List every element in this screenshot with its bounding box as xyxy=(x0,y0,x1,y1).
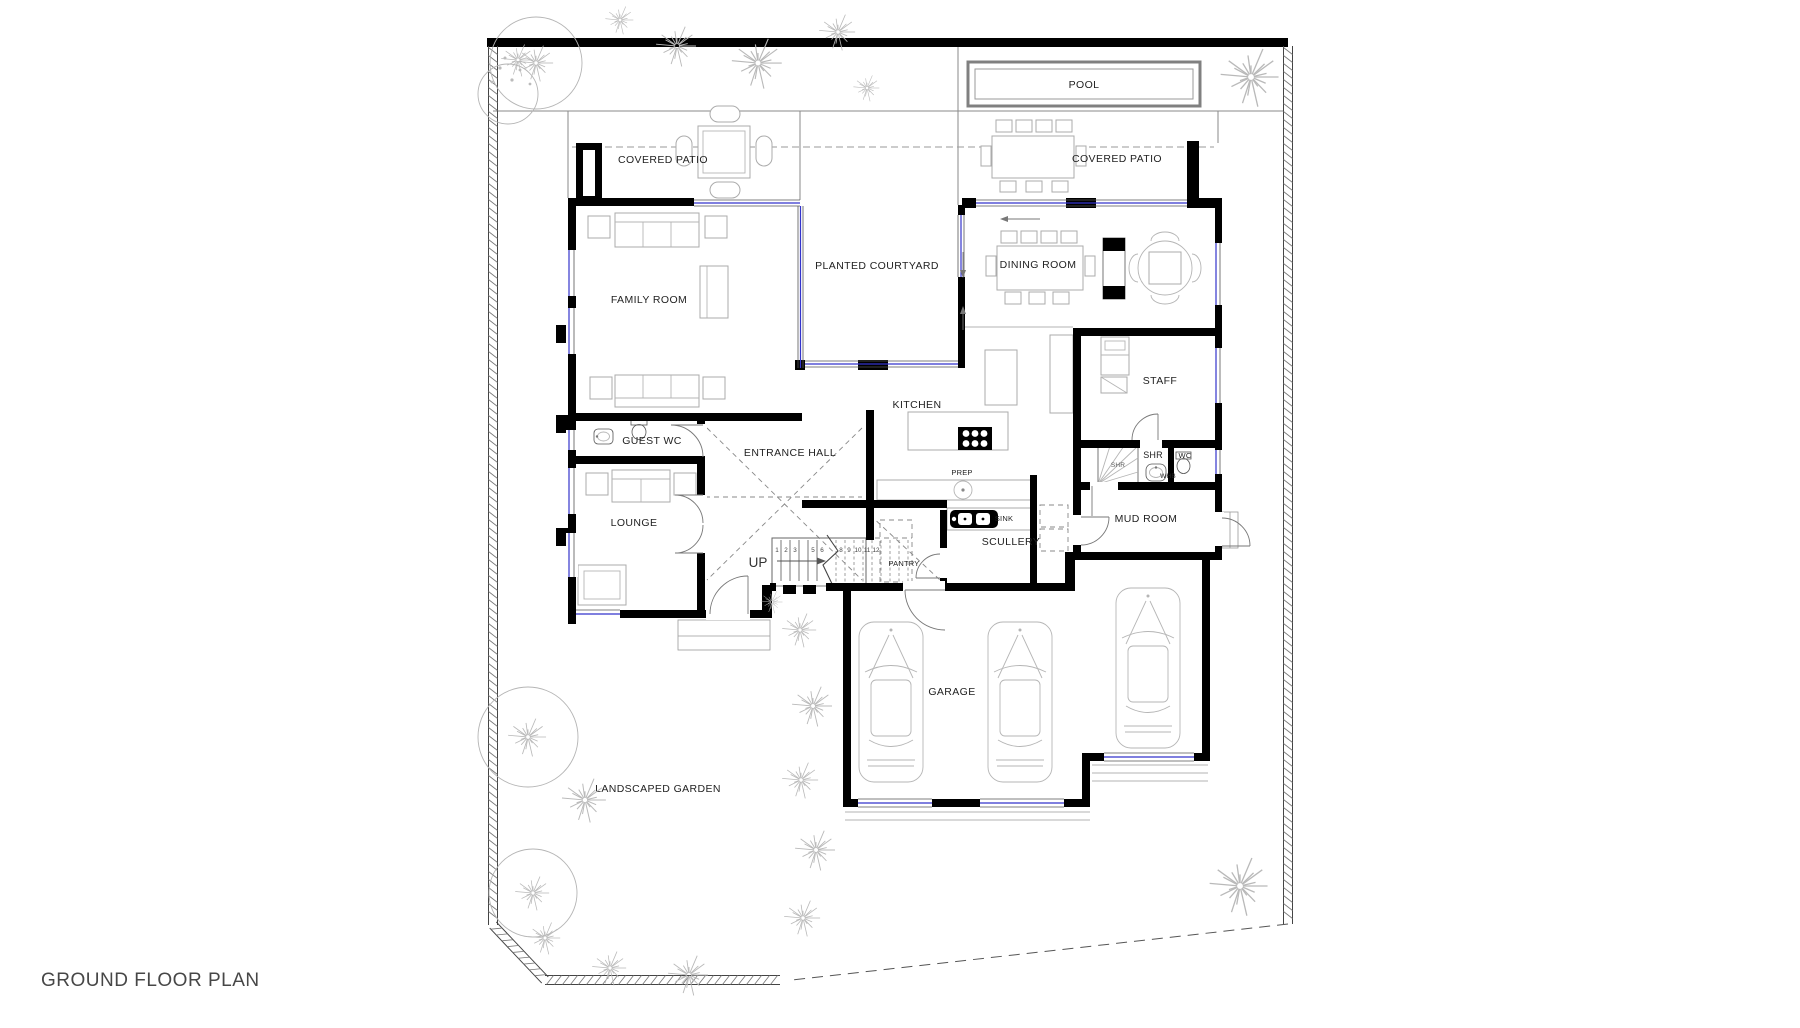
tree-icon xyxy=(1210,858,1268,916)
label-up: UP xyxy=(749,555,768,570)
property-line-dashed xyxy=(792,924,1288,980)
floor-plan: POOL COVERED PATIO COVERED PATIO FAMILY … xyxy=(0,0,1800,1028)
label-family-room: FAMILY ROOM xyxy=(611,294,687,306)
tree-icon xyxy=(782,614,816,648)
patio-table-right xyxy=(981,120,1086,192)
stair-tread-number: 8 xyxy=(839,547,843,554)
tree-icon xyxy=(508,719,546,757)
family-room-furniture xyxy=(588,213,728,407)
label-landscaped-garden: LANDSCAPED GARDEN xyxy=(595,783,721,795)
label-kitchen: KITCHEN xyxy=(893,399,942,411)
tree-icon xyxy=(853,75,879,101)
stair-tread-numbers: 1 2 3 5 6 8 9 10 11 12 xyxy=(775,547,880,554)
label-planted-courtyard: PLANTED COURTYARD xyxy=(815,260,939,272)
label-shr: SHR xyxy=(1143,450,1163,460)
tree-icon xyxy=(515,877,549,911)
stair-tread-number: 12 xyxy=(872,547,880,554)
label-scullery: SCULLERY xyxy=(982,536,1040,548)
label-pool: POOL xyxy=(1069,79,1100,91)
stair-tread-number: 1 xyxy=(775,547,779,554)
tree-icon xyxy=(784,901,820,937)
stair-tread-number: 2 xyxy=(784,547,788,554)
label-dining-room: DINING ROOM xyxy=(1000,259,1077,271)
tree-icon xyxy=(528,923,560,955)
tree-icon xyxy=(792,687,832,727)
label-shr-inner: SHR xyxy=(1111,462,1125,469)
label-prep: PREP xyxy=(951,468,972,477)
tree-icon xyxy=(1221,49,1279,107)
pebbles xyxy=(491,57,532,86)
label-entrance-hall: ENTRANCE HALL xyxy=(744,447,836,459)
label-guest-wc: GUEST WC xyxy=(622,435,682,447)
floor-plan-canvas: POOL COVERED PATIO COVERED PATIO FAMILY … xyxy=(0,0,1800,1028)
drawing-title: GROUND FLOOR PLAN xyxy=(41,970,260,991)
stair-tread-number: 11 xyxy=(864,547,871,554)
patio-table-left xyxy=(676,106,772,198)
label-covered-patio-right: COVERED PATIO xyxy=(1072,153,1162,165)
label-pantry: PANTRY xyxy=(889,559,920,568)
stair-tread-number: 6 xyxy=(820,547,824,554)
stair-tread-number: 3 xyxy=(793,547,797,554)
label-covered-patio-left: COVERED PATIO xyxy=(618,154,708,166)
lounge-furniture xyxy=(578,470,696,605)
tree-icon xyxy=(795,831,835,871)
tree-icon xyxy=(517,46,553,82)
label-garage: GARAGE xyxy=(928,686,975,698)
label-whb: WHB xyxy=(1160,473,1176,480)
site-lines xyxy=(493,47,1284,820)
stair-tread-number: 10 xyxy=(854,547,862,554)
label-wc: WC xyxy=(1179,451,1192,460)
tree-icon xyxy=(782,763,818,799)
label-lounge: LOUNGE xyxy=(611,517,658,529)
stair-tread-number: 5 xyxy=(811,547,815,554)
label-staff: STAFF xyxy=(1143,375,1177,387)
tree-icon xyxy=(605,6,633,34)
staff-furniture xyxy=(1101,337,1129,393)
label-sink: SINK xyxy=(995,514,1013,523)
label-mud-room: MUD ROOM xyxy=(1115,513,1178,525)
stair-tread-number: 9 xyxy=(847,547,851,554)
